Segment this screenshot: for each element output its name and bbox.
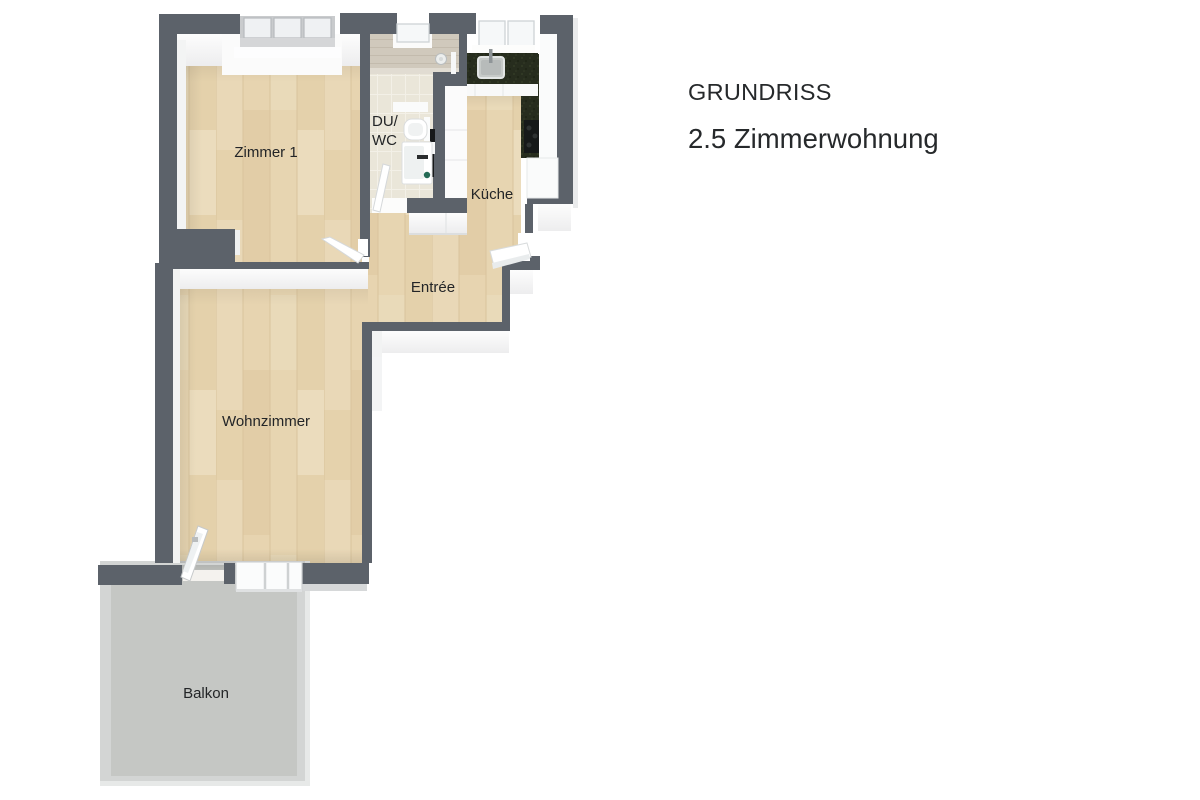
- svg-text:GRUNDRISS: GRUNDRISS: [688, 79, 832, 105]
- svg-text:Entrée: Entrée: [411, 279, 455, 296]
- svg-text:Küche: Küche: [471, 186, 514, 203]
- svg-text:Wohnzimmer: Wohnzimmer: [222, 413, 310, 430]
- svg-text:2.5 Zimmerwohnung: 2.5 Zimmerwohnung: [688, 123, 939, 154]
- svg-text:DU/: DU/: [372, 113, 399, 130]
- svg-text:WC: WC: [372, 132, 397, 149]
- svg-text:Zimmer 1: Zimmer 1: [234, 144, 297, 161]
- svg-text:Balkon: Balkon: [183, 685, 229, 702]
